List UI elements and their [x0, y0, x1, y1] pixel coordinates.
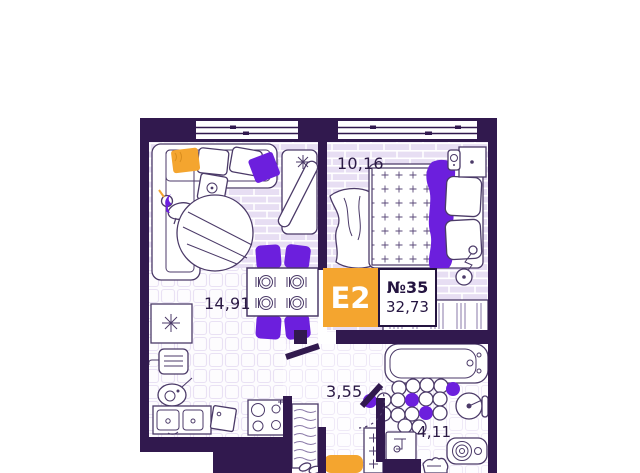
bathroom-sink — [456, 393, 488, 419]
nightstand — [459, 147, 486, 177]
alarm-gadget — [448, 150, 460, 170]
laundry-basket — [423, 458, 448, 473]
bed-pillow — [445, 219, 482, 260]
floor-plan[interactable]: 10,16 14,91 3,55 4,11 E2 №35 32,73 — [0, 0, 640, 473]
room-area-label-bedroom: 10,16 — [337, 154, 384, 173]
unit-info-badge: №35 32,73 — [378, 268, 437, 327]
dining-table — [247, 268, 318, 316]
room-area-label-bathroom: 4,11 — [417, 423, 451, 441]
pillow-orange — [171, 147, 201, 173]
dining-chair — [255, 314, 282, 340]
washing-machine — [386, 432, 416, 460]
fallen-blanket — [330, 189, 374, 269]
room-area-label-hallway: 3,55 — [326, 382, 362, 401]
round-rug — [177, 195, 253, 271]
floor-plan-drawing — [0, 0, 640, 473]
dining-chair — [255, 244, 282, 270]
window — [196, 121, 298, 139]
desk-plant — [296, 155, 310, 169]
bathtub — [385, 344, 488, 383]
room-area-label-living-kitchen: 14,91 — [204, 294, 251, 313]
bed-pillow — [445, 176, 482, 217]
toilet — [447, 438, 487, 464]
kitchen-hood — [151, 304, 192, 343]
unit-number-label: №35 — [387, 279, 429, 297]
stove — [248, 400, 285, 436]
unit-area-label: 32,73 — [386, 299, 429, 316]
unit-type-badge: E2 — [323, 268, 378, 327]
coat-rack — [292, 404, 318, 468]
mattress — [372, 168, 434, 265]
dining-chair — [284, 244, 312, 271]
desk — [276, 150, 319, 234]
window — [338, 121, 477, 139]
entry-mat — [324, 455, 363, 473]
kitchen-sink — [153, 406, 211, 434]
pillow-white-1 — [197, 147, 229, 175]
unit-type-label: E2 — [331, 281, 371, 315]
cutting-board — [210, 405, 236, 431]
